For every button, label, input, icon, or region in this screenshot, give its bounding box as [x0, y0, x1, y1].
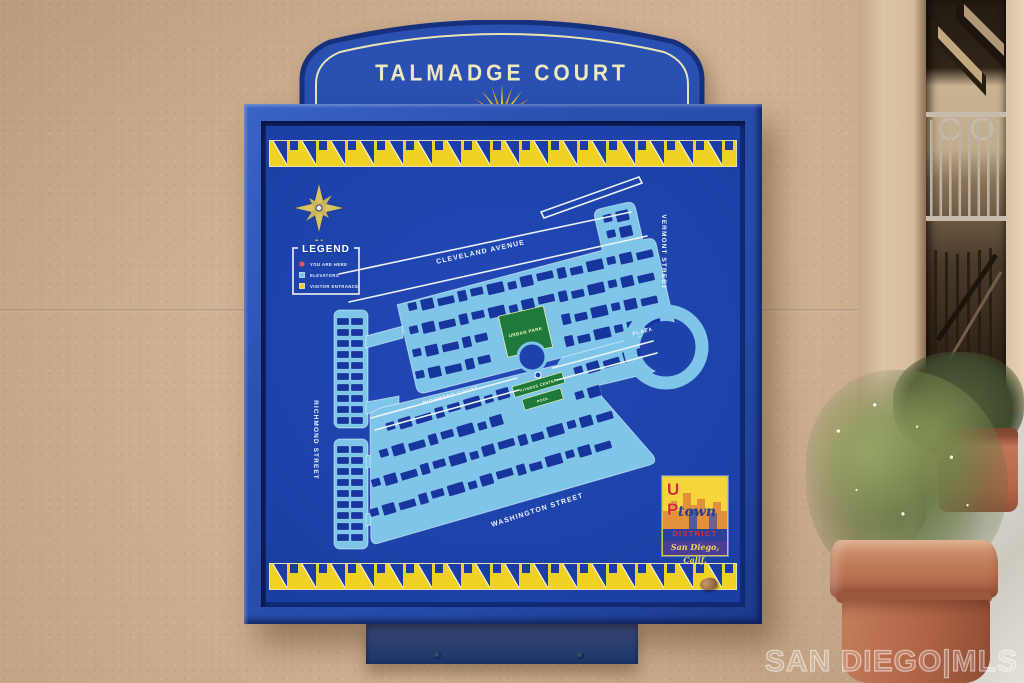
screw-icon [434, 652, 441, 659]
mounting-bracket [366, 622, 638, 664]
photo-of-talmadge-court-map-sign: TALMADGE COURT [0, 0, 1024, 683]
map-panel: URBAN PARK FITNESS CENTER POOL [266, 126, 740, 602]
vermont-street-label: VERMONT STREET [660, 214, 667, 289]
logo-district-text: DISTRICT [663, 529, 727, 541]
logo-city-text: San Diego, Calif. [663, 541, 727, 555]
sign-title: TALMADGE COURT [375, 59, 629, 85]
map-marker [535, 372, 541, 378]
decorative-border-bottom [269, 563, 737, 590]
elevators-icon [299, 272, 304, 277]
visitor-entrance-icon [299, 283, 304, 288]
sign-frame: URBAN PARK FITNESS CENTER POOL [244, 104, 762, 624]
photo-watermark: SAN DIEGO|MLS [765, 645, 1018, 679]
legend-item-label: YOU ARE HERE [310, 262, 347, 267]
you-are-here-icon [299, 261, 304, 266]
screw-icon [577, 652, 584, 659]
richmond-street-label: RICHMOND STREET [312, 400, 319, 480]
planter-rim [830, 540, 998, 598]
logo-town-text: town [678, 504, 716, 520]
compass-rose-icon [293, 182, 345, 234]
roundabout [518, 343, 546, 371]
decorative-border-top [269, 140, 737, 167]
balcony-railing [926, 112, 1006, 221]
uptown-district-logo: UP town DISTRICT San Diego, Calif. [663, 477, 727, 555]
sign-arch-header: TALMADGE COURT [296, 20, 708, 114]
legend-item-label: ELEVATORS [310, 273, 339, 278]
legend-title: LEGEND [302, 244, 350, 255]
legend-item-label: VISITOR ENTRANCE [310, 284, 359, 289]
legend: LEGEND YOU ARE HERE ELEVATORS VISITOR EN… [293, 241, 359, 294]
